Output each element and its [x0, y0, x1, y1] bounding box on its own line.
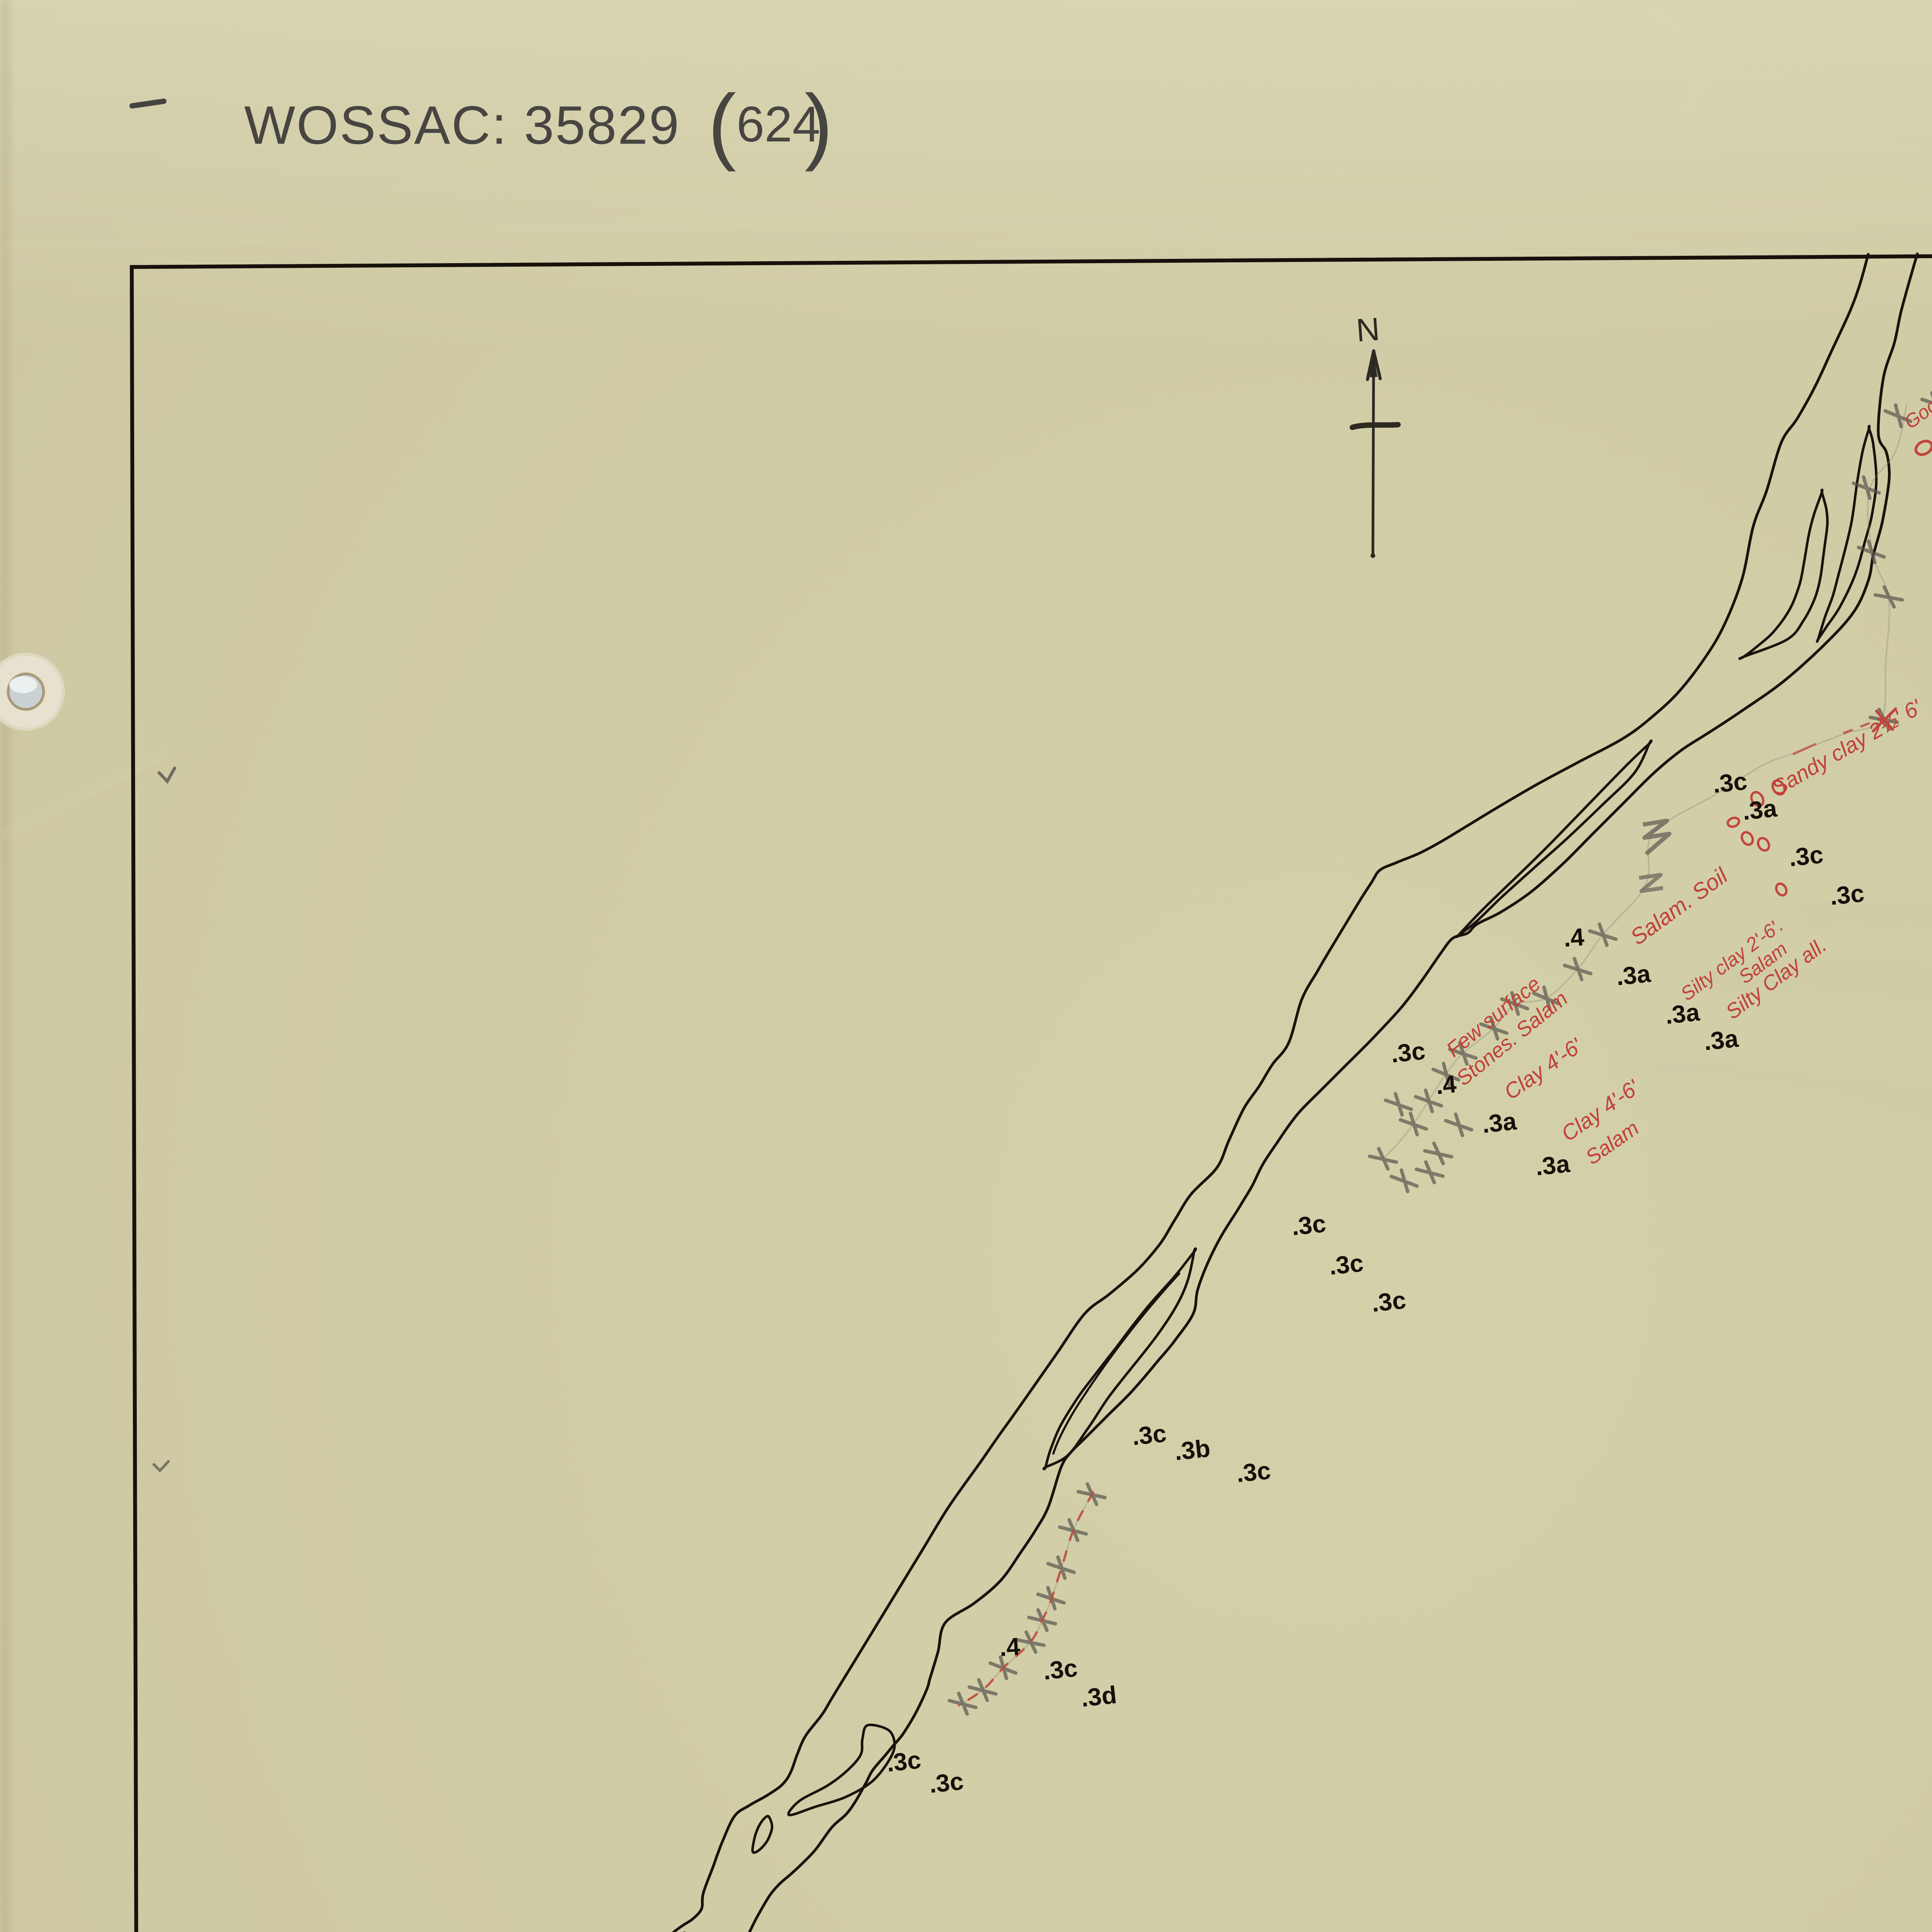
svg-text:.4: .4	[1563, 923, 1585, 952]
svg-text:.3c: .3c	[1042, 1654, 1079, 1685]
svg-text:N: N	[1355, 311, 1381, 349]
svg-text:.3c: .3c	[1711, 767, 1748, 798]
svg-text:.4: .4	[1434, 1070, 1458, 1100]
svg-text:.3c: .3c	[1370, 1286, 1407, 1317]
svg-text:.3c: .3c	[1787, 840, 1825, 872]
svg-text:.3c: .3c	[928, 1767, 965, 1798]
svg-text:.3c: .3c	[1389, 1037, 1427, 1068]
svg-text:.3c: .3c	[1828, 879, 1866, 910]
svg-text:.3c: .3c	[1235, 1456, 1272, 1488]
svg-text:.3a: .3a	[1702, 1024, 1740, 1056]
svg-text:.3c: .3c	[1131, 1419, 1168, 1451]
svg-text:.3b: .3b	[1173, 1434, 1211, 1466]
svg-text:.3a: .3a	[1534, 1150, 1571, 1181]
svg-text:.3d: .3d	[1080, 1681, 1118, 1712]
svg-text:.3c: .3c	[1290, 1209, 1327, 1241]
svg-text:(: (	[708, 77, 736, 172]
svg-text:.4: .4	[998, 1632, 1021, 1662]
svg-text:.3a: .3a	[1481, 1107, 1518, 1138]
svg-text:WOSSAC: 35829: WOSSAC: 35829	[244, 95, 680, 155]
svg-text:): )	[804, 77, 833, 172]
svg-text:.3a: .3a	[1741, 794, 1778, 825]
svg-text:.3c: .3c	[1328, 1249, 1365, 1280]
svg-text:.3a: .3a	[1615, 959, 1652, 991]
svg-text:.3a: .3a	[1664, 998, 1701, 1029]
svg-text:.3c: .3c	[885, 1746, 922, 1777]
